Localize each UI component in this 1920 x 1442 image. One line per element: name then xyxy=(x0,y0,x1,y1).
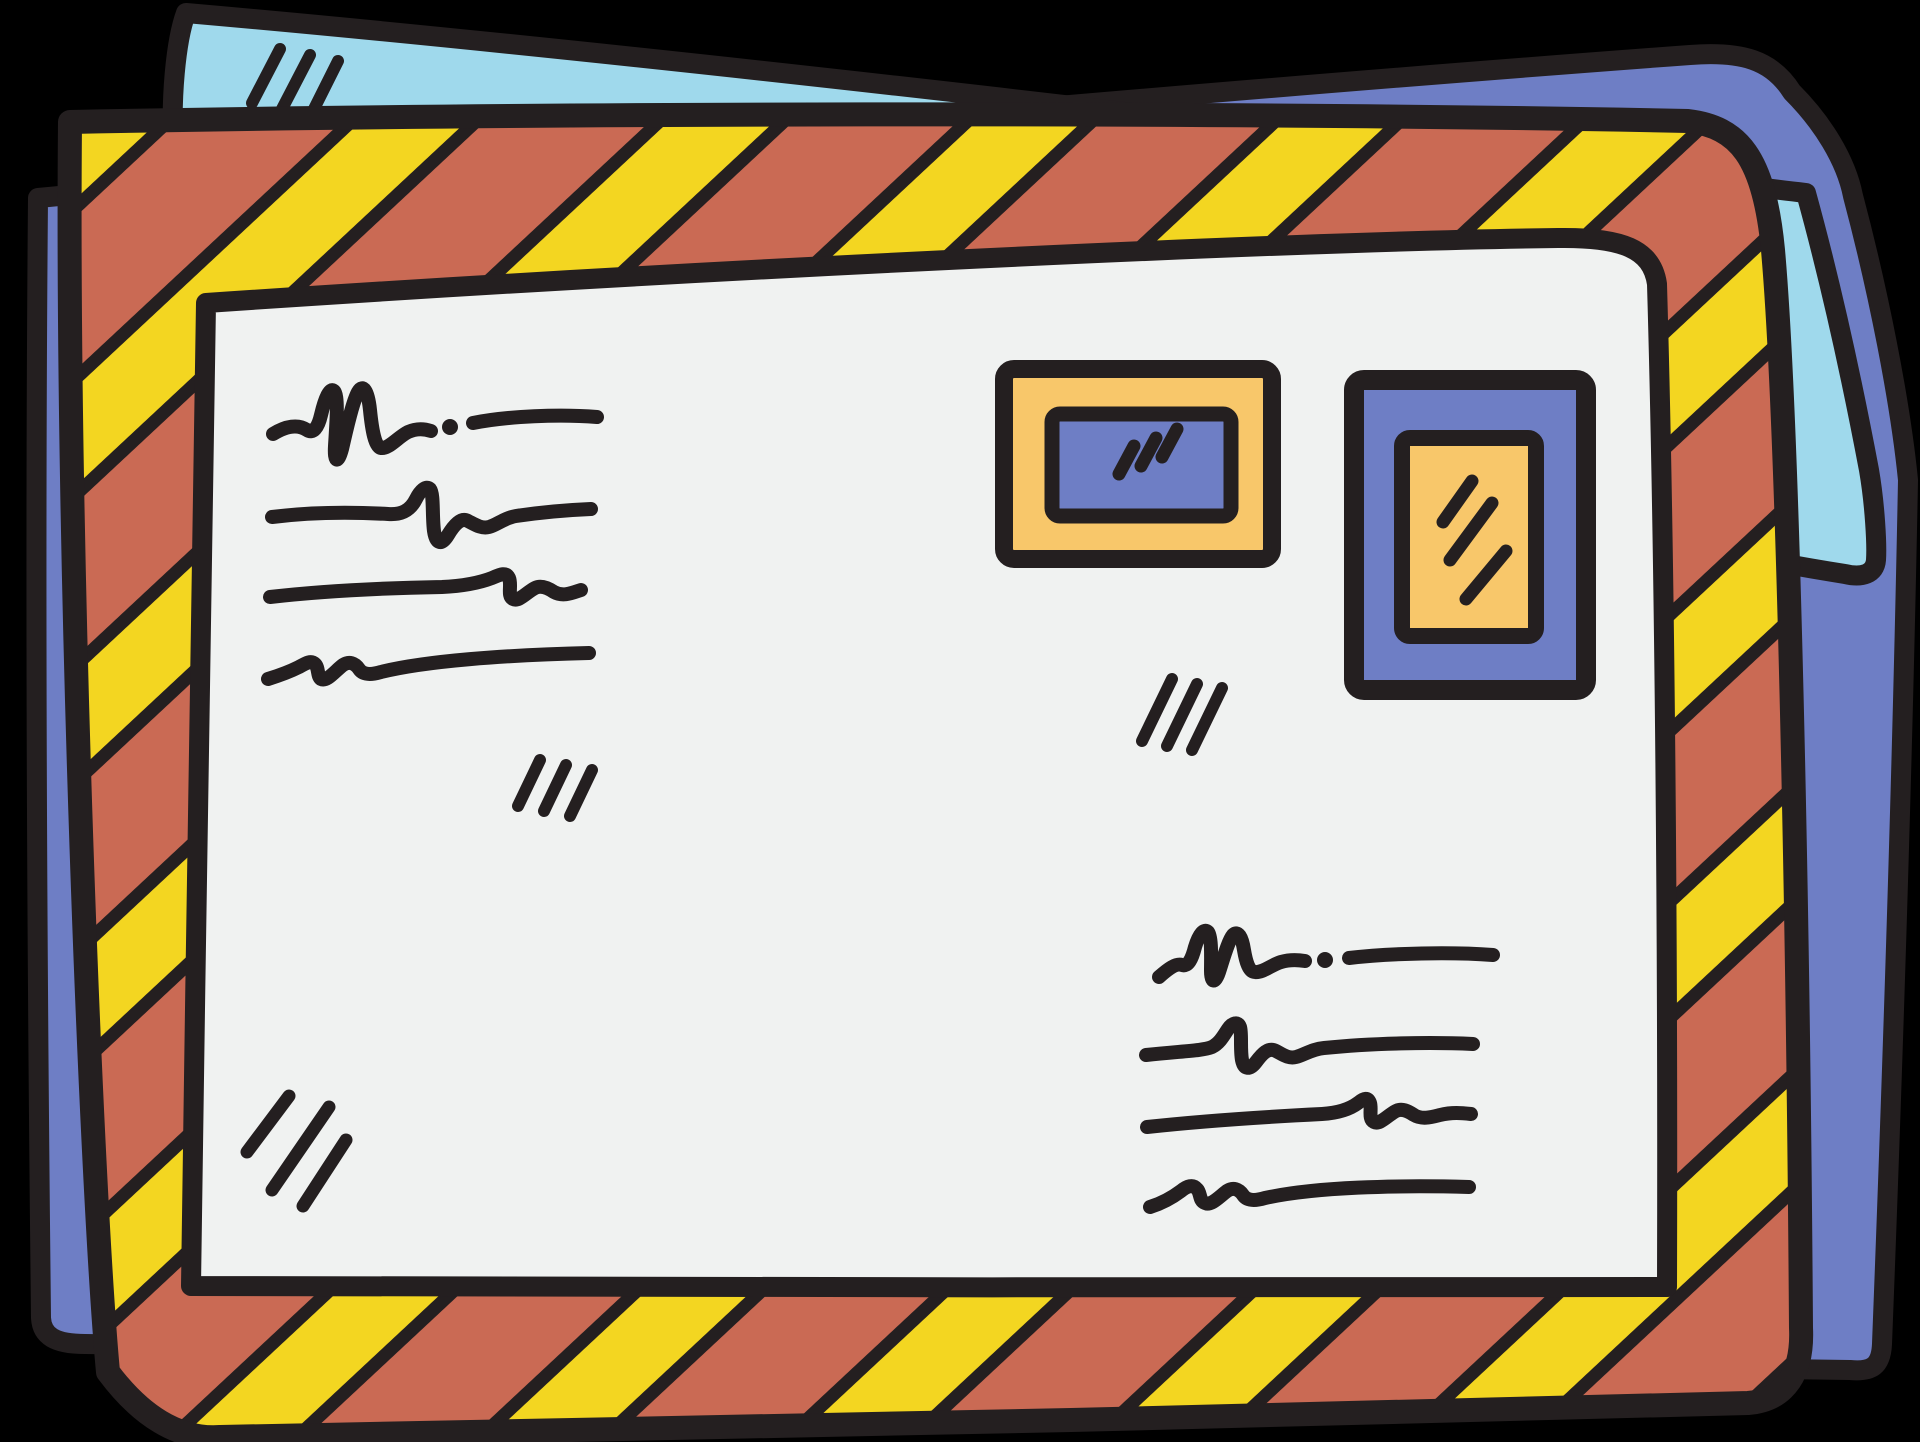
message-dot xyxy=(1317,952,1333,968)
message-dash xyxy=(1349,953,1493,958)
address-dash xyxy=(473,416,597,423)
stamp-portrait xyxy=(1354,380,1586,690)
address-dot xyxy=(442,419,458,435)
airmail-envelope-illustration xyxy=(0,0,1920,1442)
illustration-stage xyxy=(0,0,1920,1442)
stamp-landscape xyxy=(1004,369,1272,559)
